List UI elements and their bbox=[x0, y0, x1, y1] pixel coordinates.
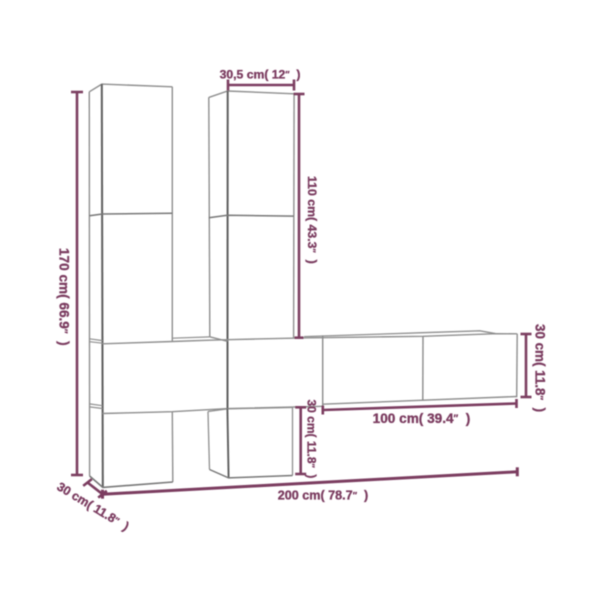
svg-text:170 cm( 66.9″ ): 170 cm( 66.9″ ) bbox=[57, 248, 72, 346]
svg-text:30,5 cm( 12″ ): 30,5 cm( 12″ ) bbox=[220, 68, 301, 82]
svg-text:200 cm( 78.7″ ): 200 cm( 78.7″ ) bbox=[278, 489, 368, 503]
svg-text:30 cm( 11.8″ ): 30 cm( 11.8″ ) bbox=[533, 324, 548, 412]
svg-text:30 cm( 11.8″ ): 30 cm( 11.8″ ) bbox=[305, 400, 319, 479]
svg-text:100 cm( 39.4″ ): 100 cm( 39.4″ ) bbox=[373, 411, 471, 426]
svg-text:110 cm( 43.3″ ): 110 cm( 43.3″ ) bbox=[305, 176, 319, 264]
